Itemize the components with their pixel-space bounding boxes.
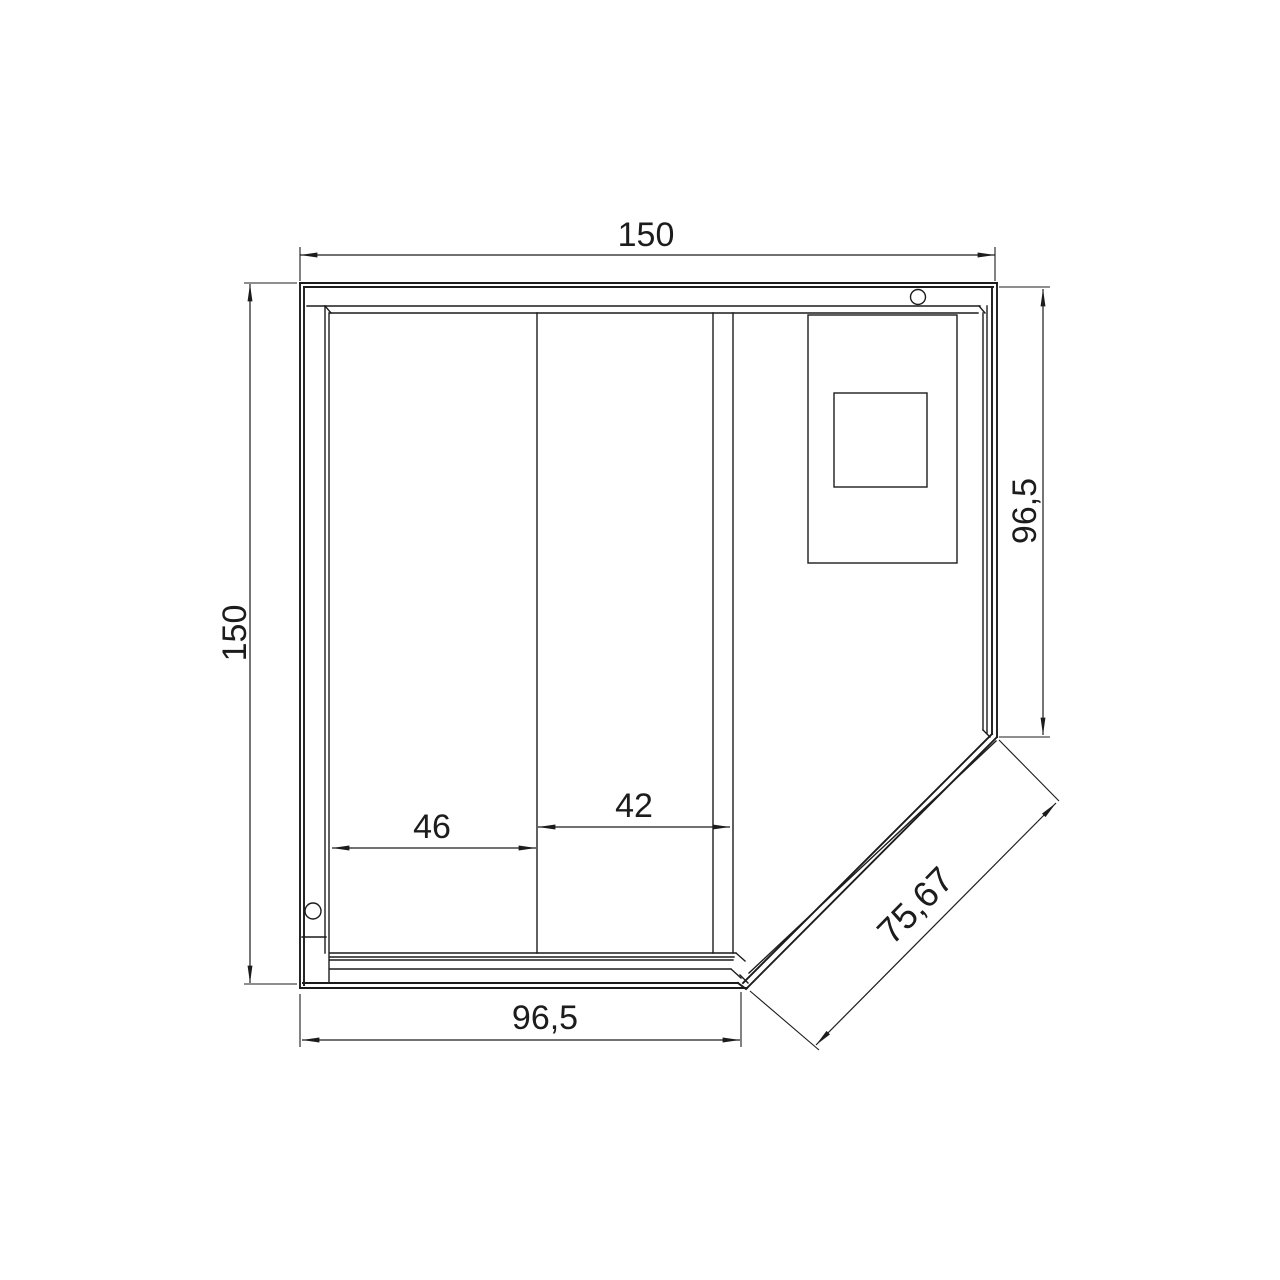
dimension-label: 42 [615,787,653,825]
dimension-right-height: 96,5 [999,287,1050,737]
dimension-label: 96,5 [1006,478,1044,544]
bottom-wall-outer-lines [300,983,747,989]
corner-cabin-floorplan: 150 150 96,5 96,5 46 42 75,67 [0,0,1280,1280]
shower-column-inset-square [834,393,927,487]
left-wall-hole [305,903,321,919]
dimension-label: 150 [618,216,675,254]
dimension-left-height: 150 [216,283,297,984]
dimension-line [816,803,1056,1045]
bottom-threshold-rails [330,953,745,978]
dimension-label: 150 [216,605,254,662]
panel-divider-lines [537,313,733,953]
left-wall-outer-lines [300,283,304,988]
shower-column-outline [808,315,957,563]
dimension-top-width: 150 [300,216,995,281]
right-wall-inner-lines [983,306,987,733]
dimension-label: 75,67 [869,859,961,952]
right-wall-outer-lines [992,283,997,737]
top-wall-inner-lines [307,306,980,313]
dimension-label: 46 [413,808,451,846]
dimension-label: 96,5 [512,999,578,1037]
dimension-panel-right: 42 [538,787,730,827]
corner-chamfer-lines [325,306,990,983]
diagonal-door-line [749,741,996,973]
dimension-panel-left: 46 [332,808,536,848]
cabin-outline [300,283,997,989]
dimension-bottom-width: 96,5 [300,992,741,1047]
top-wall-hole [911,290,926,305]
dimension-diagonal: 75,67 [750,740,1059,1050]
diagonal-front-outer-lines [743,734,997,988]
technical-drawing-page: 150 150 96,5 96,5 46 42 75,67 [0,0,1280,1280]
left-wall-inner-lines [302,306,329,982]
top-wall-outer-lines [300,283,997,287]
